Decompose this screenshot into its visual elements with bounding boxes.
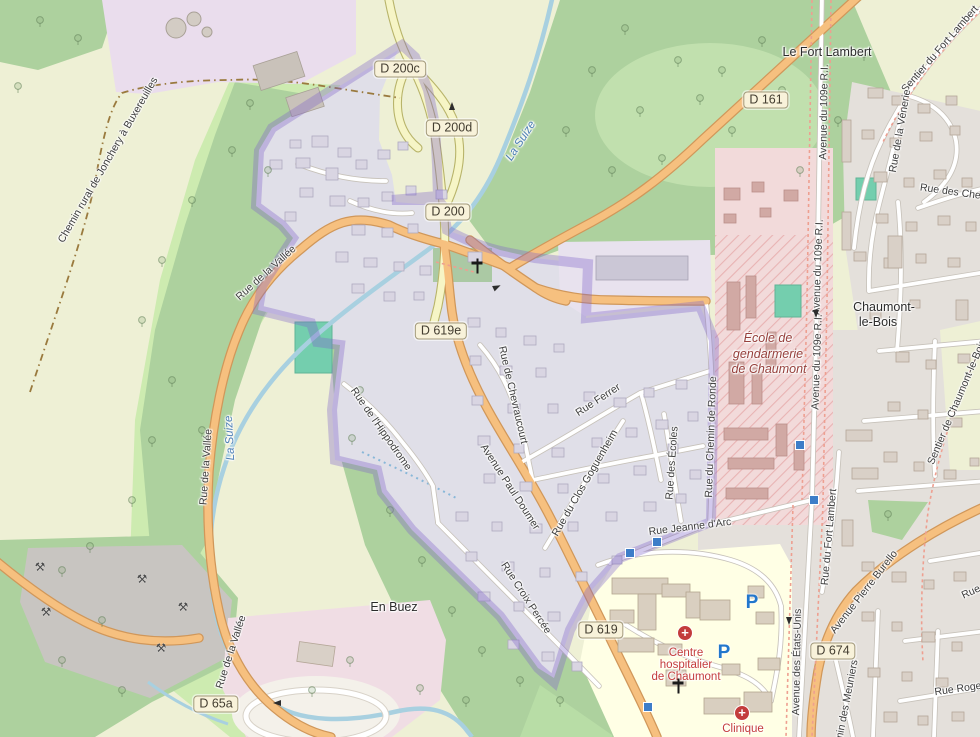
school-name-label: gendarmerie [733,347,803,361]
street-name-label: Rue de Chevraucourt [496,345,530,445]
street-name-label: Rue Jeanne d'Arc [648,516,732,538]
quarry-pickaxe-icon: ⚒ [137,572,148,586]
road-ref-badge: D 619e [415,323,467,340]
hospital-name-label: Centre [669,647,704,659]
street-name-label: Rue du Chemin de Ronde [703,376,719,498]
street-name-label: Rue du Clos Goguenheim [550,428,621,539]
street-name-label: Chemin rural de Jonchery à Buxereuilles [56,75,161,245]
quarry-pickaxe-icon: ⚒ [41,605,52,619]
hospital-name-label: hospitalier [660,659,712,671]
water-name-label: La Suize [223,415,237,460]
oneway-arrow-icon [449,102,455,110]
street-name-label: Rue Ferrer [573,381,622,419]
school-name-label: de Chaumont [731,362,806,376]
bus-stop-icon [809,495,819,505]
road-ref-badge: D 200 [425,204,470,221]
street-name-label: Rue de la Vénerie [887,89,913,174]
hospital-cross-icon [734,705,750,721]
street-name-label: Sentier de Chaumont-le-Bois [925,338,980,467]
map-labels-layer: Chemin rural de Jonchery à BuxereuillesS… [0,0,980,737]
church-cross-icon [472,259,483,274]
bus-stop-icon [652,537,662,547]
hospital-name-label: de Chaumont [651,671,720,683]
hospital-cross-icon [677,625,693,641]
water-name-label: La Suize [504,119,538,163]
street-name-label: Rue de l'Hippodrome [348,385,414,472]
street-name-label: Avenue Paul Doumer [478,442,542,532]
road-ref-badge: D 65a [193,696,238,713]
street-name-label: Rue Roge [934,680,980,698]
map-canvas[interactable]: Chemin rural de Jonchery à BuxereuillesS… [0,0,980,737]
bus-stop-icon [643,702,653,712]
street-name-label: Rue de la Vallée [234,243,299,303]
parking-icon: P [746,592,759,614]
street-name-label: Rue des Chev [919,181,980,202]
hospital-name-label: Clinique [722,723,764,735]
street-name-label: Rue de la Vallée [214,614,249,690]
street-name-label: Avenue Pierre Burello [828,548,900,636]
street-name-label: Avenue des États-Unis [790,609,804,716]
parking-icon: P [718,642,731,664]
church-cross-icon [673,679,684,694]
oneway-arrow-icon [813,310,819,318]
road-ref-badge: D 161 [743,92,788,109]
quarry-pickaxe-icon: ⚒ [35,560,46,574]
road-ref-badge: D 674 [810,643,855,660]
street-name-label: Rue [960,582,980,601]
street-name-label: Avenue du 109e R.I. [809,314,824,410]
bus-stop-icon [625,548,635,558]
place-name-label: Chaumont- [853,300,915,314]
bus-stop-icon [795,440,805,450]
street-name-label: Rue de la Vallée [197,429,214,506]
street-name-label: Sentier du Fort Lambert [899,3,980,95]
oneway-arrow-icon [492,283,502,292]
street-name-label: Avenue du 109e R.I. [817,64,831,160]
street-name-label: Rue du Fort Lambert [819,488,839,586]
street-name-label: Rue Croix Percée [498,560,553,636]
road-ref-badge: D 200d [426,120,478,137]
place-name-label: En Buez [370,600,417,614]
quarry-pickaxe-icon: ⚒ [156,641,167,655]
place-name-label: Le Fort Lambert [783,45,872,59]
school-name-label: École de [744,331,793,345]
place-name-label: le-Bois [859,315,897,329]
oneway-arrow-icon [273,700,281,706]
quarry-pickaxe-icon: ⚒ [178,600,189,614]
street-name-label: Chemin des Meuniers [829,659,860,737]
road-ref-badge: D 200c [374,61,426,78]
street-name-label: Avenue du 109e R.I. [810,219,825,315]
oneway-arrow-icon [786,617,792,625]
road-ref-badge: D 619 [578,622,623,639]
street-name-label: Rue des Écoles [663,426,680,500]
